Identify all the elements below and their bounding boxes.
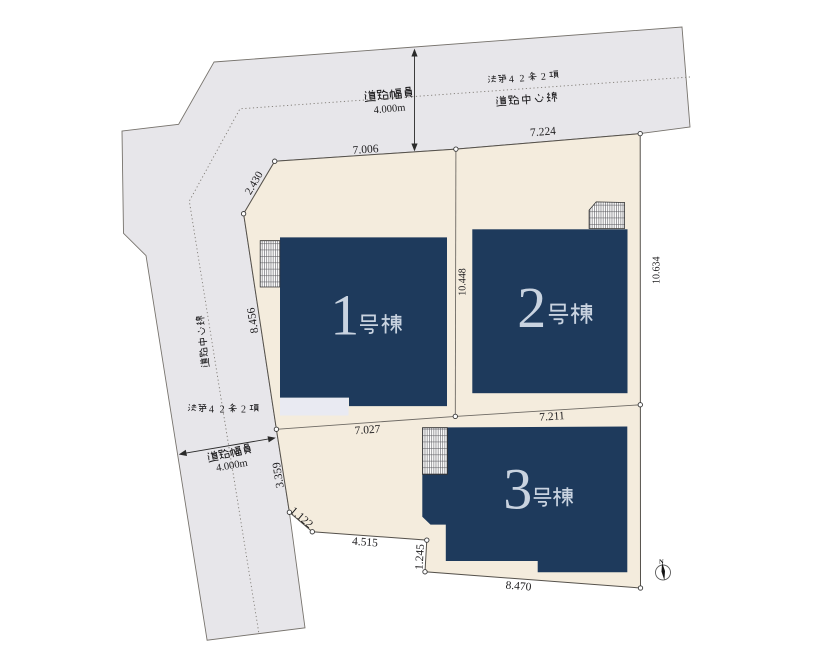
svg-text:7.224: 7.224 [530, 125, 557, 139]
svg-text:1.245: 1.245 [414, 544, 427, 571]
svg-text:7.027: 7.027 [354, 423, 381, 437]
svg-text:10.634: 10.634 [652, 257, 663, 285]
svg-text:2: 2 [519, 73, 525, 84]
svg-text:4: 4 [508, 74, 514, 85]
svg-text:2: 2 [540, 72, 546, 83]
svg-text:7.211: 7.211 [539, 410, 565, 424]
svg-text:4: 4 [209, 404, 214, 415]
svg-text:8.470: 8.470 [505, 580, 532, 594]
svg-text:1: 1 [330, 283, 359, 348]
svg-text:4.515: 4.515 [352, 536, 379, 550]
svg-text:10.448: 10.448 [458, 268, 469, 296]
svg-text:2: 2 [220, 404, 225, 415]
svg-text:N: N [659, 558, 664, 565]
svg-text:2: 2 [517, 275, 546, 340]
svg-text:7.006: 7.006 [352, 143, 379, 157]
svg-text:2: 2 [241, 404, 246, 415]
svg-text:3: 3 [503, 457, 532, 522]
